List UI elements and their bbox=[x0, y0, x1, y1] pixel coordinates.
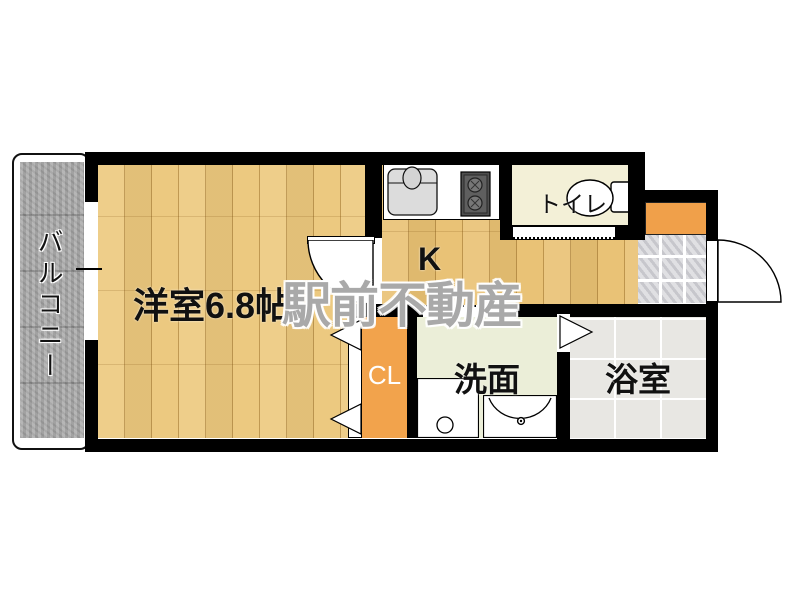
sliding-window-icon bbox=[76, 268, 102, 270]
entrance-door-leaf bbox=[706, 240, 718, 302]
wall-left-upper bbox=[85, 152, 98, 202]
washroom-label: 洗面 bbox=[417, 353, 557, 401]
wall-left-lower bbox=[85, 340, 98, 452]
wall-washroom-bathroom bbox=[557, 350, 570, 439]
entrance-tile-floor bbox=[638, 233, 706, 303]
wall-right-lower bbox=[706, 300, 718, 452]
wall-western-kitchen bbox=[365, 152, 382, 238]
wall-mid-right bbox=[507, 304, 718, 317]
bathroom-label: 浴室 bbox=[570, 353, 706, 401]
wall-bottom bbox=[85, 439, 718, 452]
western-room-label: 洋室6.8帖 bbox=[133, 277, 291, 329]
floor-plan: バルコニー bbox=[0, 0, 800, 600]
wall-kitchen-toilet bbox=[500, 152, 512, 225]
watermark-text: 駅前不動産 bbox=[282, 266, 522, 337]
toilet-door bbox=[513, 227, 615, 239]
balcony-label: バルコニー bbox=[34, 228, 68, 428]
kitchen-sink-icon bbox=[388, 167, 437, 215]
bathroom-folding-door-icon bbox=[558, 313, 596, 353]
shoe-cabinet bbox=[645, 202, 708, 235]
kitchen-counter bbox=[383, 163, 500, 220]
wall-right-upper bbox=[706, 190, 718, 242]
toilet-label: トイレ bbox=[538, 185, 607, 219]
wall-entrance-top bbox=[630, 190, 718, 202]
window-opening bbox=[85, 202, 98, 340]
entrance-door-swing-icon bbox=[718, 239, 782, 303]
stove-icon bbox=[461, 172, 490, 216]
closet-label: CL bbox=[362, 360, 407, 391]
washbasin-icon bbox=[483, 395, 557, 438]
